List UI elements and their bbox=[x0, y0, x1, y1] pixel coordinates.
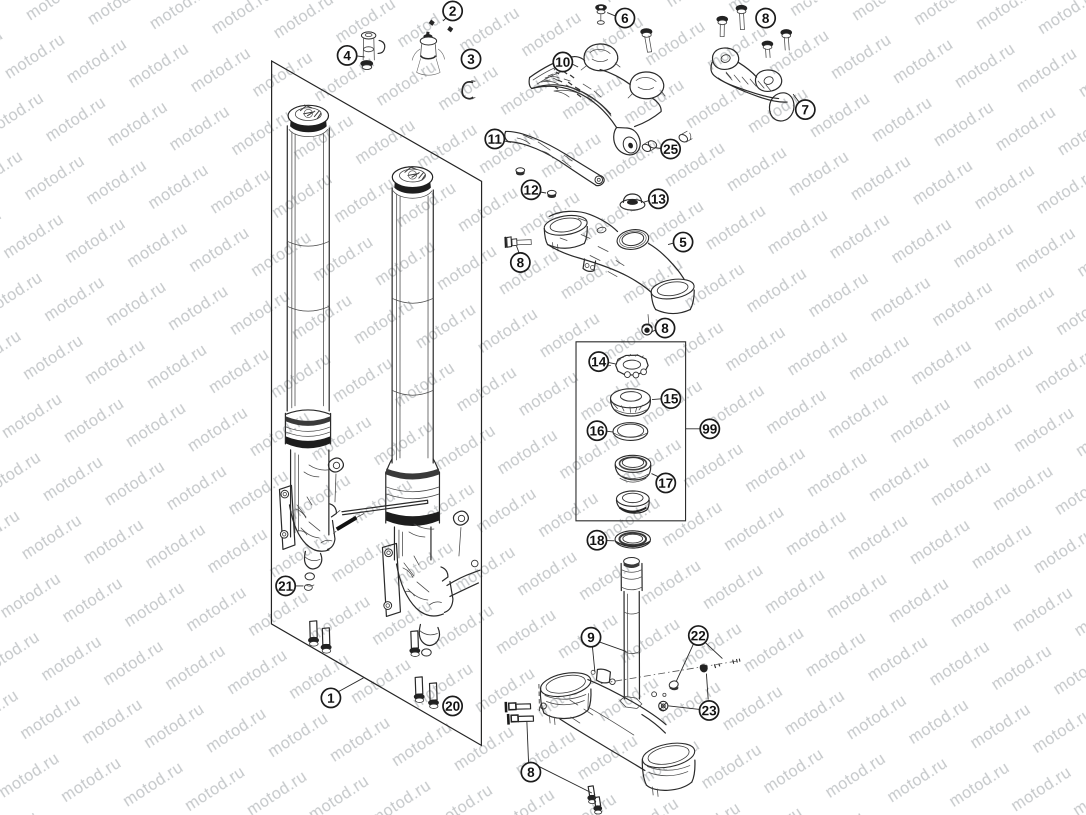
svg-text:18: 18 bbox=[589, 533, 605, 548]
svg-text:8: 8 bbox=[661, 321, 669, 336]
svg-text:10: 10 bbox=[555, 55, 570, 70]
svg-text:14: 14 bbox=[591, 354, 607, 369]
svg-text:11: 11 bbox=[488, 132, 503, 147]
svg-text:15: 15 bbox=[663, 391, 679, 406]
svg-text:9: 9 bbox=[587, 630, 595, 645]
svg-text:12: 12 bbox=[524, 183, 539, 198]
svg-text:17: 17 bbox=[658, 476, 673, 491]
svg-text:8: 8 bbox=[517, 255, 525, 270]
svg-text:21: 21 bbox=[278, 579, 294, 594]
svg-text:8: 8 bbox=[527, 765, 535, 780]
svg-text:99: 99 bbox=[702, 422, 717, 437]
svg-text:16: 16 bbox=[589, 424, 605, 439]
svg-text:25: 25 bbox=[663, 142, 679, 157]
svg-text:4: 4 bbox=[343, 48, 351, 63]
svg-text:5: 5 bbox=[679, 235, 687, 250]
svg-text:22: 22 bbox=[691, 628, 706, 643]
svg-text:8: 8 bbox=[762, 11, 770, 26]
svg-text:3: 3 bbox=[467, 52, 475, 67]
svg-text:2: 2 bbox=[449, 4, 457, 19]
svg-text:7: 7 bbox=[802, 102, 810, 117]
svg-text:6: 6 bbox=[621, 11, 629, 26]
svg-text:1: 1 bbox=[327, 691, 335, 706]
svg-text:13: 13 bbox=[651, 192, 667, 207]
svg-text:23: 23 bbox=[702, 703, 718, 718]
svg-text:20: 20 bbox=[445, 699, 460, 714]
